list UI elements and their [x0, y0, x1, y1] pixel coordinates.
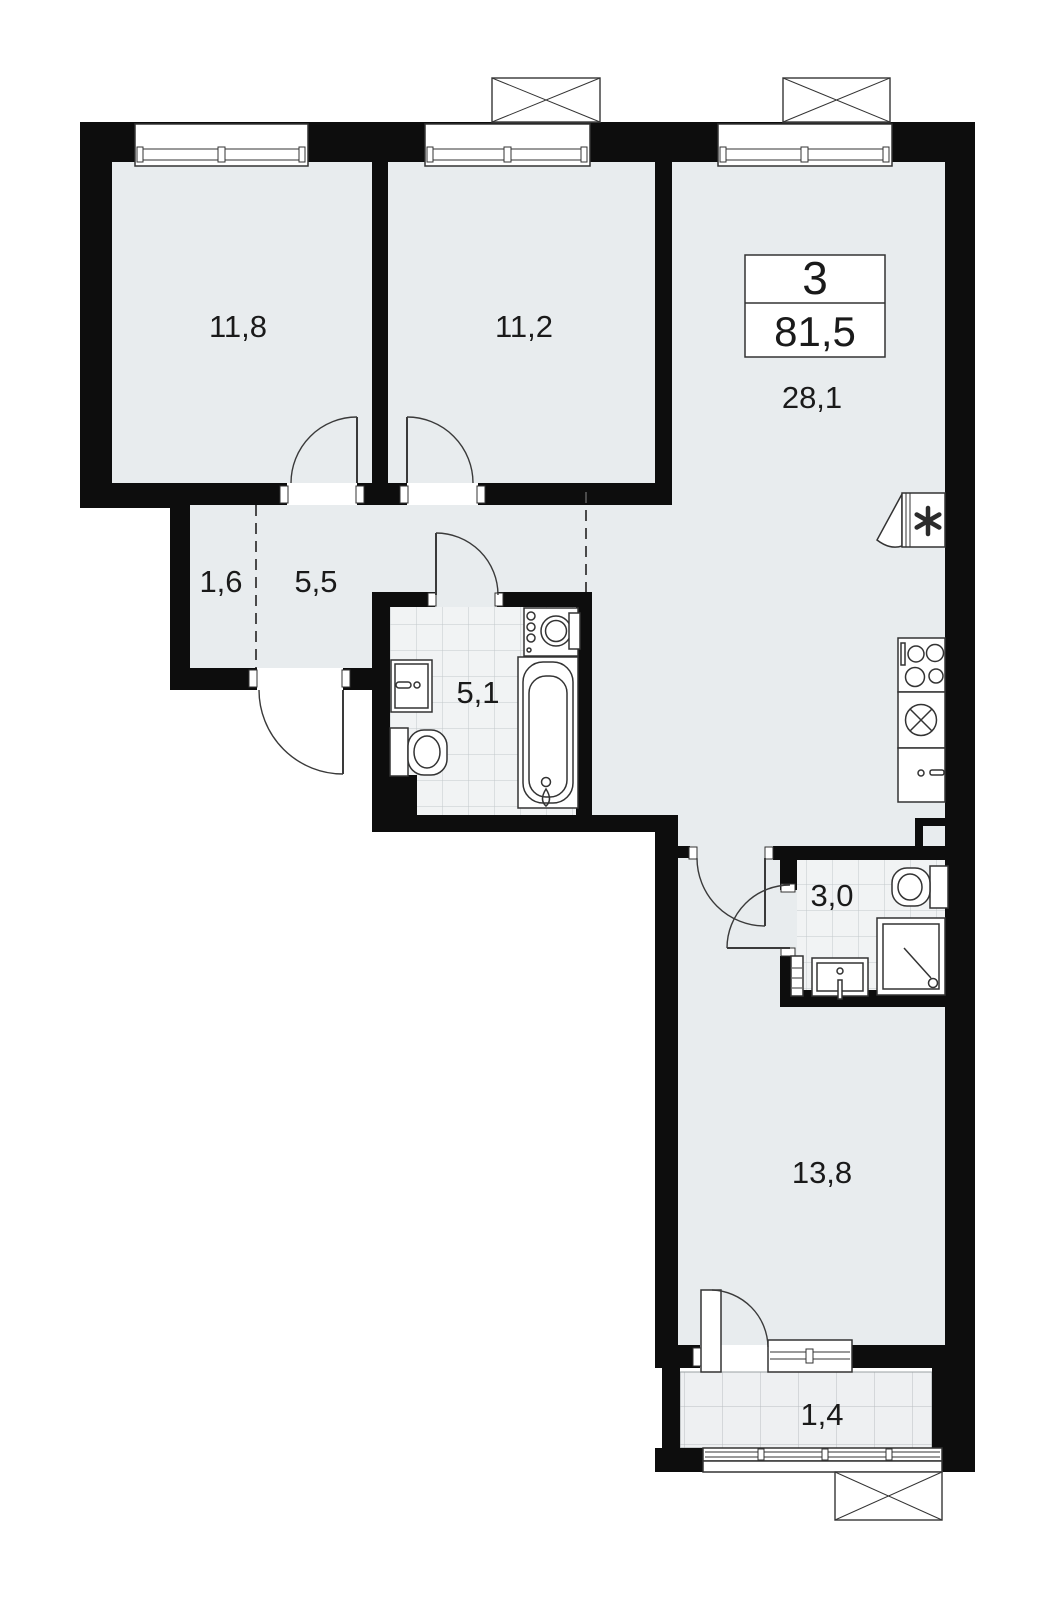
wc-area-label: 3,0 [810, 878, 853, 913]
legend-box: 3 81,5 [745, 252, 885, 357]
ac-unit-icon [835, 1472, 942, 1520]
towel-radiator [791, 956, 803, 996]
kitchen-living-area-label: 28,1 [782, 380, 842, 415]
kitchen-cabinet [898, 748, 945, 802]
total-area: 81,5 [774, 308, 856, 355]
shower [877, 918, 945, 995]
floor-plan-drawing: 3 81,5 11,8 11,2 28,1 1,6 5,5 5,1 3,0 13… [0, 0, 1054, 1600]
structural-column [382, 775, 417, 820]
window-bedroom2 [425, 124, 590, 166]
balcony-glazing [703, 1448, 942, 1472]
bathtub [518, 657, 578, 808]
window-bedroom1 [135, 124, 308, 166]
ac-unit-icon [783, 78, 890, 122]
bedroom3-area-label: 13,8 [792, 1155, 852, 1190]
floor-plan: 3 81,5 11,8 11,2 28,1 1,6 5,5 5,1 3,0 13… [0, 0, 1054, 1600]
washing-machine [524, 608, 580, 656]
window-bedroom3 [768, 1340, 852, 1372]
kitchen-sink [898, 692, 945, 748]
toilet [390, 728, 447, 776]
bedroom1-area-label: 11,8 [209, 309, 267, 344]
bathroom-sink [391, 660, 432, 712]
hallway-area-label: 5,5 [294, 564, 337, 599]
ac-unit-icon [492, 78, 600, 122]
bathroom-area-label: 5,1 [456, 675, 499, 710]
bedroom2-area-label: 11,2 [495, 309, 553, 344]
wc-sink [812, 958, 868, 999]
window-kitchen-living [718, 124, 892, 166]
balcony-area-label: 1,4 [800, 1397, 843, 1432]
door-entrance [249, 670, 350, 774]
wc-toilet [892, 866, 948, 908]
rooms-count: 3 [802, 252, 828, 304]
stove [898, 638, 945, 692]
entry-nook-area-label: 1,6 [199, 564, 242, 599]
